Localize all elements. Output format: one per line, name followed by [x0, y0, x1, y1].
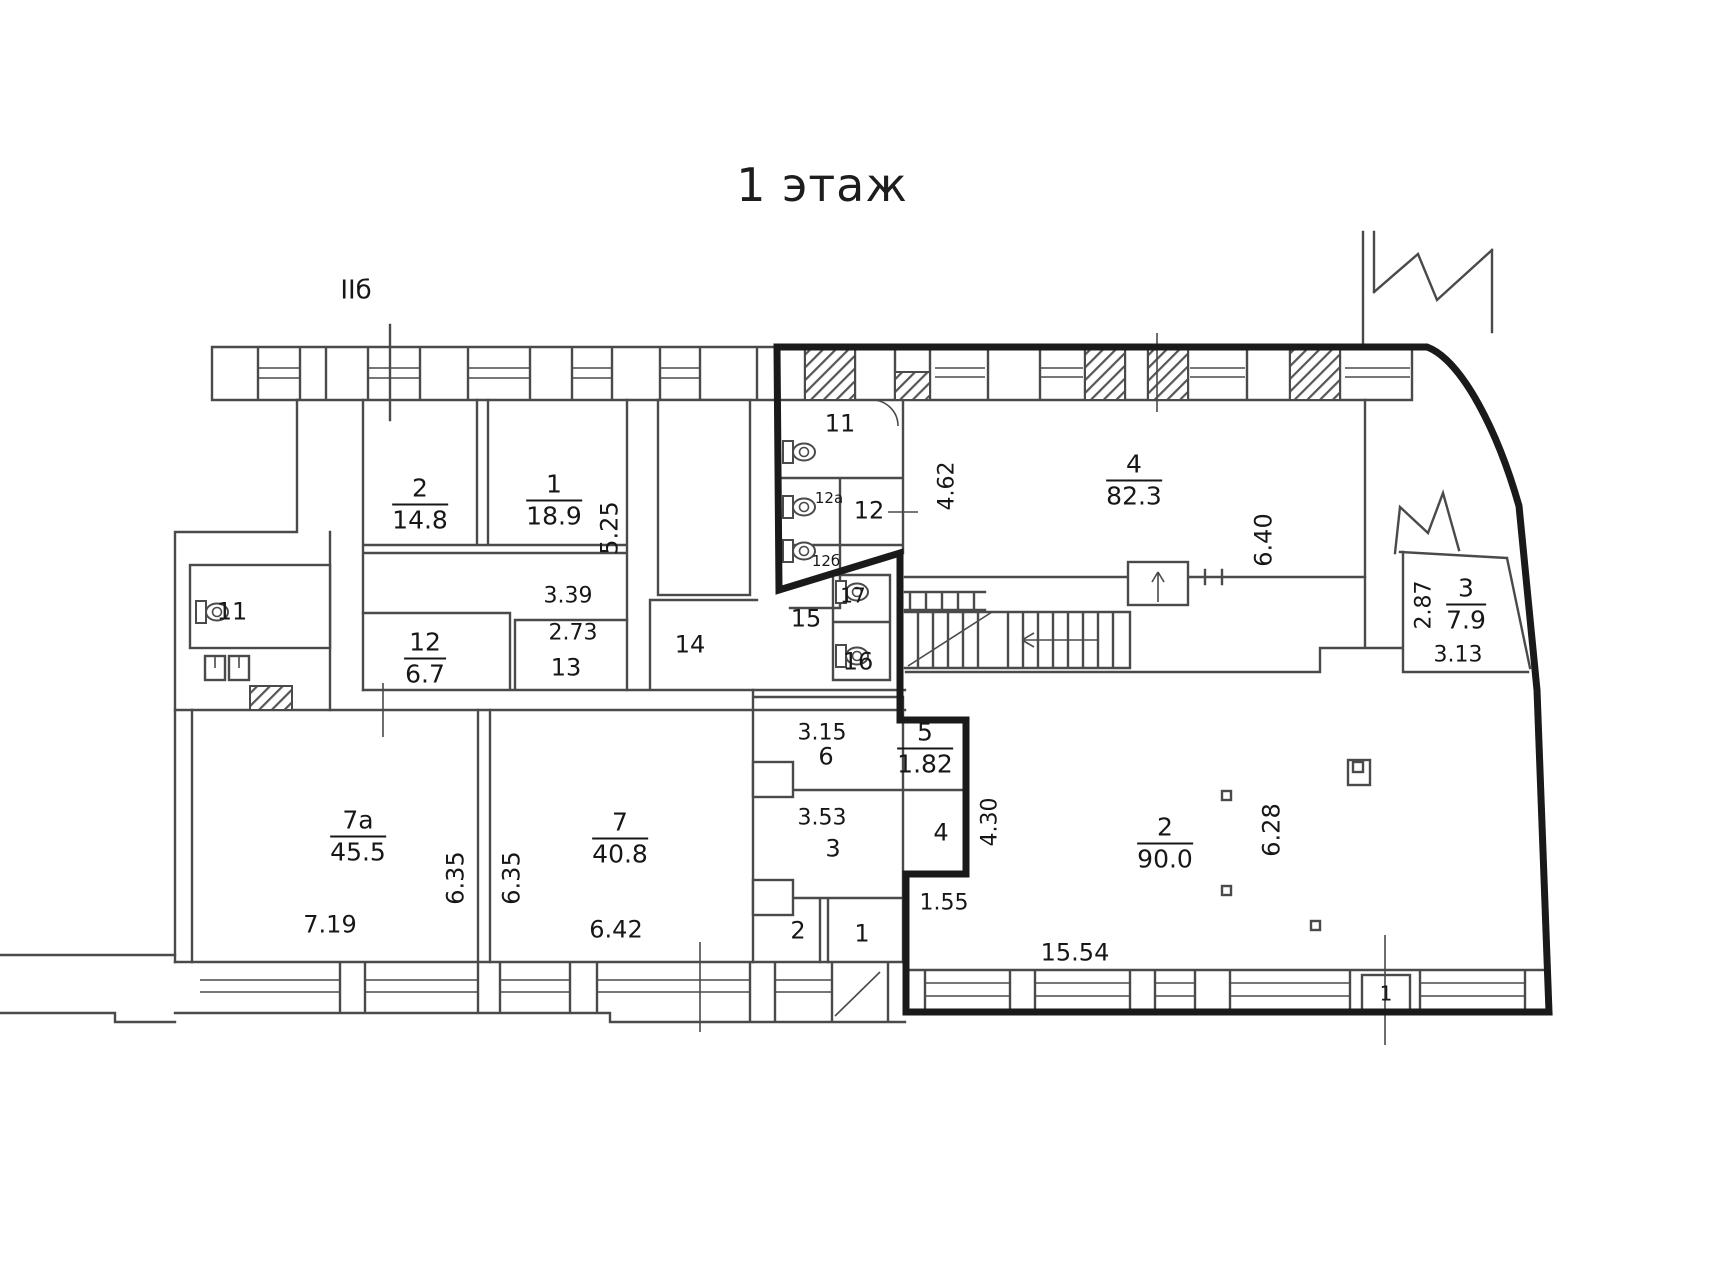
room-7a-label: 7а45.5: [330, 807, 386, 866]
room-3-label: 3: [825, 836, 840, 861]
dim-5-25: 5.25: [597, 501, 622, 554]
window-1-label: 1: [1380, 984, 1393, 1005]
dim-3-15: 3.15: [798, 721, 847, 744]
room-5-label: 51.82: [897, 719, 953, 778]
walls-thin: [0, 232, 1545, 1045]
room-12a-label: 12а: [815, 491, 843, 507]
section-mark: IIб: [340, 277, 371, 304]
room-12-wc-label: 12: [854, 498, 885, 523]
dim-3-53: 3.53: [798, 806, 847, 829]
dim-2-73: 2.73: [549, 621, 598, 644]
dim-3-13: 3.13: [1434, 643, 1483, 666]
room-11-right-label: 11: [825, 411, 856, 436]
hatched-wall: [1148, 349, 1188, 400]
column: [1222, 886, 1231, 895]
room-4-small-label: 4: [933, 820, 948, 845]
room-1-label: 118.9: [526, 471, 582, 530]
dim-6-42: 6.42: [589, 917, 642, 942]
dim-7-19: 7.19: [303, 912, 356, 937]
room-13-label: 13: [551, 655, 582, 680]
room-7-label: 740.8: [592, 809, 648, 868]
dim-6-40: 6.40: [1251, 513, 1276, 566]
dim-6-35-a: 6.35: [443, 851, 468, 904]
wall-break-symbol: [1395, 493, 1459, 553]
shaft: [658, 400, 750, 595]
wall-pier: [753, 762, 793, 797]
hatched-wall: [895, 372, 930, 400]
room-17-label: 17: [840, 586, 865, 607]
dim-4-30: 4.30: [978, 798, 1001, 847]
dim-1-55: 1.55: [920, 891, 969, 914]
column: [1311, 921, 1320, 930]
door-arc: [872, 400, 898, 426]
premises-boundary: [777, 347, 1549, 1012]
room-11-left-label: 11: [217, 599, 248, 624]
dim-2-87: 2.87: [1412, 581, 1435, 630]
floor-plan: 1 этаж 214.8118.9126.77а45.5740.8482.337…: [0, 0, 1730, 1280]
room-15-label: 15: [791, 606, 822, 631]
dimension-ticks: [383, 512, 1385, 1045]
room-2-main-label: 290.0: [1137, 814, 1193, 873]
hatched-wall: [805, 349, 855, 400]
dim-6-35-b: 6.35: [499, 851, 524, 904]
duct-symbol-inner: [1353, 762, 1363, 772]
page-title: 1 этаж: [736, 158, 908, 212]
room-12b-label: 12б: [812, 554, 840, 570]
room-14-label: 14: [675, 632, 706, 657]
room-3-right-label: 37.9: [1446, 575, 1486, 634]
room-2-small-label: 2: [790, 918, 805, 943]
wall-break-symbol: [1363, 232, 1492, 347]
room-2-label: 214.8: [392, 475, 448, 534]
room-6-label: 6: [818, 744, 833, 769]
dim-4-62: 4.62: [935, 462, 958, 511]
dim-6-28: 6.28: [1259, 803, 1284, 856]
dim-15-54: 15.54: [1041, 940, 1110, 965]
dim-3-39: 3.39: [544, 584, 593, 607]
stair-direction-arrow: [1022, 633, 1098, 647]
hatched-wall: [1290, 349, 1340, 400]
room-1-small-label: 1: [854, 921, 869, 946]
room-4-label: 482.3: [1106, 451, 1162, 510]
column: [1222, 791, 1231, 800]
room-16-label: 16: [843, 649, 874, 674]
hatched-wall: [250, 686, 292, 710]
room-12-label: 126.7: [404, 629, 446, 688]
staircase: [905, 592, 1130, 668]
wall-pier: [753, 880, 793, 915]
hatched-wall: [1085, 349, 1125, 400]
